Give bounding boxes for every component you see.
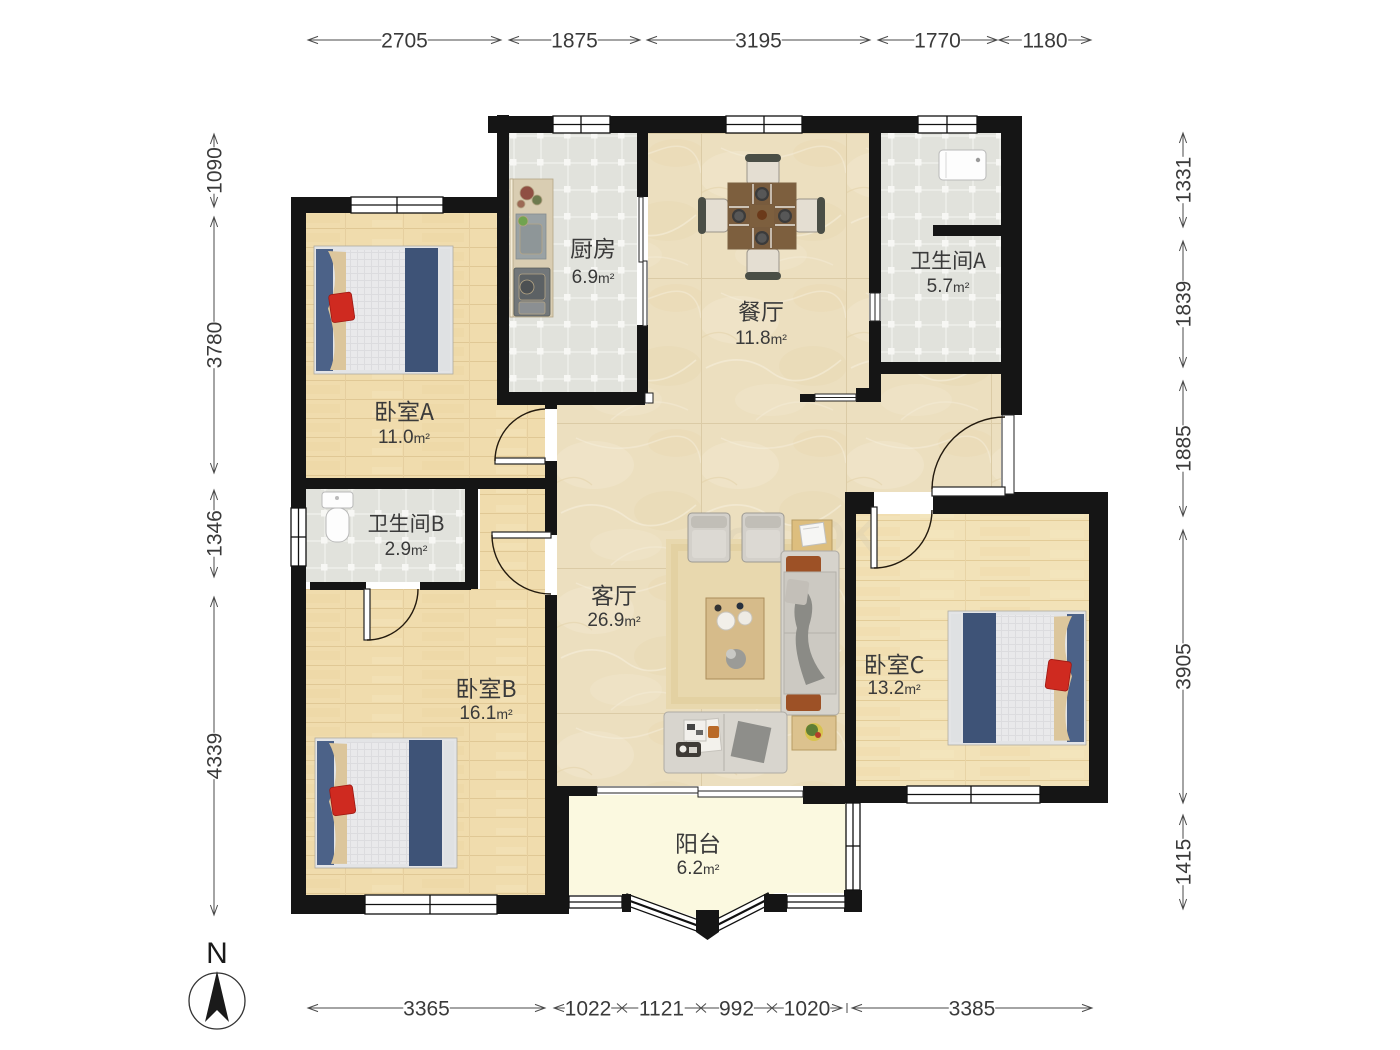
- svg-text:3195: 3195: [735, 30, 782, 53]
- svg-text:1022: 1022: [565, 998, 612, 1021]
- svg-text:1885: 1885: [1173, 425, 1196, 472]
- svg-text:1090: 1090: [204, 147, 227, 194]
- svg-text:1875: 1875: [551, 30, 598, 53]
- svg-text:16.1m²: 16.1m²: [459, 703, 513, 724]
- svg-text:3365: 3365: [403, 998, 450, 1021]
- svg-text:992: 992: [719, 998, 754, 1021]
- svg-text:3385: 3385: [949, 998, 996, 1021]
- svg-text:N: N: [206, 937, 228, 970]
- svg-text:1839: 1839: [1173, 281, 1196, 328]
- svg-text:1331: 1331: [1173, 157, 1196, 204]
- svg-text:3905: 3905: [1173, 643, 1196, 690]
- svg-text:4339: 4339: [204, 733, 227, 780]
- svg-text:3780: 3780: [204, 322, 227, 369]
- svg-text:26.9m²: 26.9m²: [587, 610, 641, 631]
- svg-text:6.9m²: 6.9m²: [572, 267, 615, 288]
- svg-text:13.2m²: 13.2m²: [867, 678, 921, 699]
- svg-text:1346: 1346: [204, 510, 227, 557]
- svg-text:1415: 1415: [1173, 839, 1196, 886]
- svg-text:6.2m²: 6.2m²: [677, 858, 720, 879]
- svg-text:1121: 1121: [639, 998, 684, 1021]
- svg-text:1180: 1180: [1022, 30, 1067, 53]
- svg-text:2705: 2705: [381, 30, 428, 53]
- svg-text:11.0m²: 11.0m²: [378, 427, 430, 448]
- svg-text:1770: 1770: [914, 30, 961, 53]
- svg-text:2.9m²: 2.9m²: [385, 539, 428, 560]
- svg-text:1020: 1020: [784, 998, 831, 1021]
- svg-text:5.7m²: 5.7m²: [927, 276, 970, 297]
- svg-text:11.8m²: 11.8m²: [735, 328, 787, 349]
